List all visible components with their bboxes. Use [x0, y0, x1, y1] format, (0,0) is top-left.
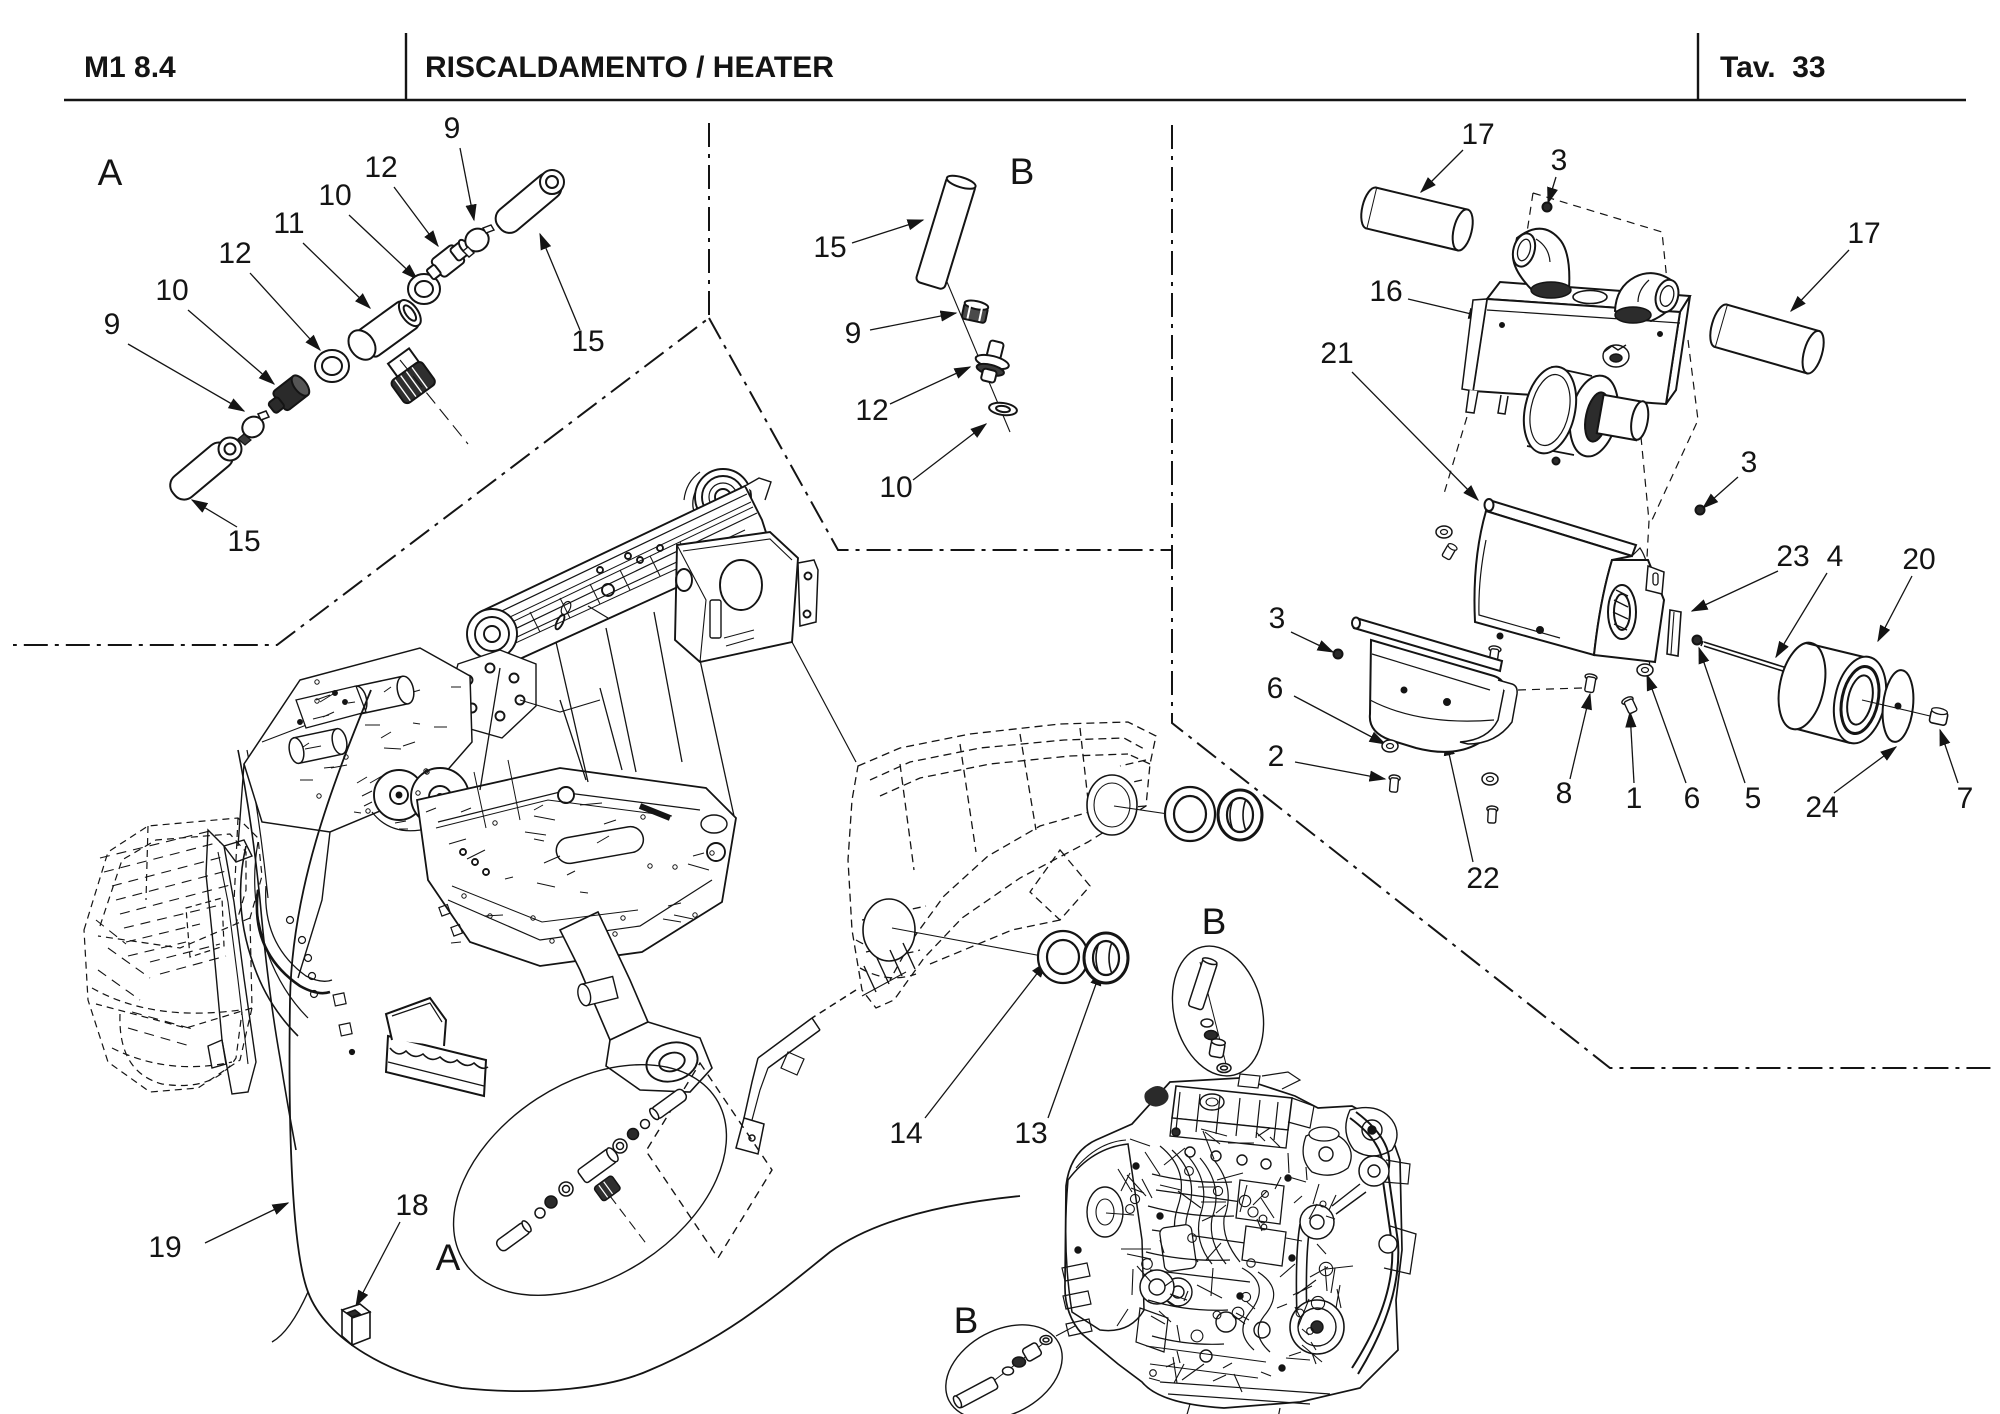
svg-text:16: 16	[1369, 275, 1402, 308]
svg-text:10: 10	[155, 274, 188, 307]
svg-text:15: 15	[813, 231, 846, 264]
svg-text:A: A	[436, 1237, 461, 1278]
svg-text:B: B	[954, 1300, 979, 1341]
svg-text:2: 2	[1268, 740, 1285, 773]
svg-text:18: 18	[395, 1189, 428, 1222]
svg-text:19: 19	[148, 1231, 181, 1264]
svg-text:12: 12	[855, 394, 888, 427]
svg-text:1: 1	[1626, 782, 1643, 815]
svg-text:10: 10	[879, 471, 912, 504]
svg-text:24: 24	[1805, 791, 1838, 824]
svg-text:6: 6	[1267, 672, 1284, 705]
svg-text:4: 4	[1827, 540, 1844, 573]
svg-text:RISCALDAMENTO / HEATER: RISCALDAMENTO / HEATER	[425, 51, 834, 84]
svg-text:21: 21	[1320, 337, 1353, 370]
svg-text:3: 3	[1741, 446, 1758, 479]
svg-text:3: 3	[1551, 144, 1568, 177]
svg-text:3: 3	[1269, 602, 1286, 635]
svg-text:10: 10	[318, 179, 351, 212]
svg-text:20: 20	[1902, 543, 1935, 576]
svg-text:M1 8.4: M1 8.4	[84, 51, 176, 84]
svg-text:9: 9	[845, 317, 862, 350]
svg-text:9: 9	[444, 112, 461, 145]
svg-text:22: 22	[1466, 862, 1499, 895]
svg-text:12: 12	[364, 151, 397, 184]
svg-text:17: 17	[1461, 118, 1494, 151]
svg-text:7: 7	[1957, 782, 1974, 815]
svg-text:6: 6	[1684, 782, 1701, 815]
svg-text:11: 11	[273, 207, 304, 240]
svg-text:B: B	[1202, 901, 1227, 942]
svg-text:23: 23	[1776, 540, 1809, 573]
svg-text:13: 13	[1014, 1117, 1047, 1150]
svg-text:Tav. 33: Tav. 33	[1720, 51, 1826, 84]
svg-text:12: 12	[218, 237, 251, 270]
svg-text:17: 17	[1847, 217, 1880, 250]
svg-text:14: 14	[889, 1117, 922, 1150]
svg-text:15: 15	[227, 525, 260, 558]
svg-text:15: 15	[571, 325, 604, 358]
svg-text:8: 8	[1556, 777, 1573, 810]
svg-text:B: B	[1010, 151, 1035, 192]
svg-text:9: 9	[104, 308, 121, 341]
svg-text:A: A	[98, 152, 123, 193]
svg-text:5: 5	[1745, 782, 1762, 815]
